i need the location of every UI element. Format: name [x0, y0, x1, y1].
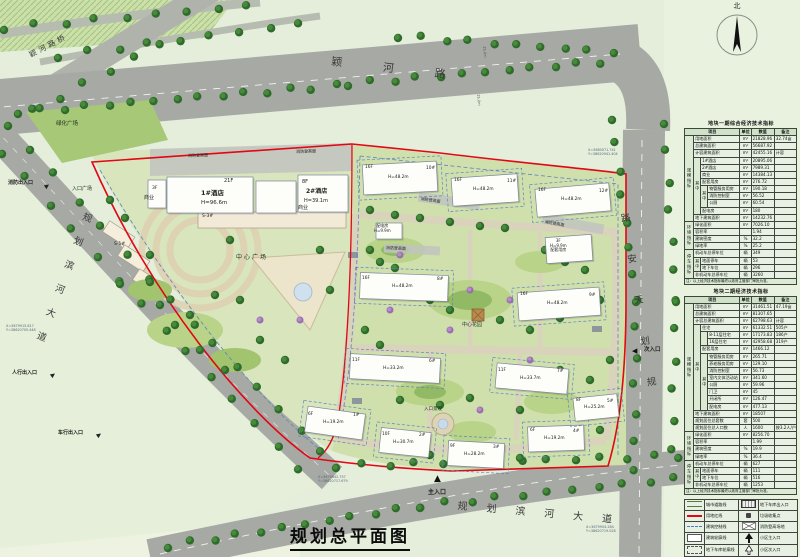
- indicator-table: 项目单位数值备注规模指标用地面积m²31461.5147.19亩总建筑面积m²8…: [684, 296, 797, 495]
- table-group-cell: 其中: [694, 157, 701, 214]
- power-room-label: 配电房H=9.9m: [374, 224, 391, 233]
- table-value-cell: m²: [740, 207, 751, 214]
- table-value-cell: 111: [751, 467, 774, 474]
- table-value-cell: 296: [751, 264, 774, 271]
- center-garden-label: 中心花园: [462, 323, 482, 329]
- table-value-cell: [774, 257, 796, 264]
- table1-title: 地块一期综合经济技术指标: [684, 120, 798, 127]
- building-number-label: 12#: [599, 190, 608, 195]
- table-value-cell: 21828.96: [751, 136, 774, 143]
- table-item-cell: 配电房: [701, 207, 740, 214]
- building-number-label: 1#: [353, 414, 359, 419]
- table-item-cell: 计容总建筑面积: [694, 317, 740, 324]
- table-group-cell: 其中: [694, 325, 701, 411]
- table-value-cell: 20895.06: [751, 157, 774, 164]
- table-row: 非机动车总停车位辆3260: [685, 271, 797, 278]
- table-value-cell: 14232.76: [751, 214, 774, 221]
- building-number-label: 6#: [429, 360, 435, 365]
- table-item-cell: 用地面积: [694, 303, 740, 310]
- table-value-cell: 辆: [740, 250, 751, 257]
- table-value-cell: 186户: [774, 332, 796, 339]
- table-item-cell: 地下建筑面积: [694, 214, 740, 221]
- table-group-cell: 环境指标: [685, 221, 694, 250]
- table-item-cell: 配套用房: [701, 346, 740, 353]
- table-value-cell: 319户: [774, 339, 796, 346]
- legend-row: 地下车库轮廓线小区次入口: [685, 544, 798, 556]
- table-value-cell: 辆: [740, 264, 751, 271]
- table-value-cell: 56.73: [751, 367, 774, 374]
- table-value-cell: 辆: [740, 475, 751, 482]
- table-item-cell: 容积率: [694, 228, 740, 235]
- table-value-cell: 计容: [774, 150, 796, 157]
- table-value-cell: m²: [740, 193, 751, 200]
- table-value-cell: 1253: [751, 482, 774, 489]
- vehicle-entrance-label: 车行出入口: [58, 431, 83, 437]
- north-arrow: 北: [708, 3, 766, 65]
- table-group-cell: 其中: [694, 467, 701, 481]
- table-value-cell: 62798.63: [751, 317, 774, 324]
- table-item-cell: 建筑密度: [694, 236, 740, 243]
- table-value-cell: m²: [740, 396, 751, 403]
- table-row: 环境指标绿化面积m²7026.10: [685, 221, 797, 228]
- table-value-cell: %: [740, 236, 751, 243]
- legend-label: 建筑轮廓线: [705, 532, 739, 544]
- table-group-cell: 停车指标: [685, 460, 694, 489]
- north-label: 北: [708, 3, 766, 10]
- building-height-label: H=48.2m: [473, 188, 494, 193]
- table-value-cell: [774, 475, 796, 482]
- table-header-cell: 项目: [685, 129, 740, 136]
- table-item-cell: 8-11层住宅: [708, 332, 740, 339]
- table-value-cell: %: [740, 446, 751, 453]
- table-value-cell: [774, 207, 796, 214]
- table-value-cell: [774, 417, 796, 424]
- table-item-cell: 配电房: [708, 403, 740, 410]
- table-value-cell: 32.74亩: [774, 136, 796, 143]
- table-value-cell: %: [740, 453, 751, 460]
- table-item-cell: 1#酒店: [701, 157, 740, 164]
- coordinate-label: X=3679915.817Y=38620705.448: [6, 324, 36, 333]
- table-value-cell: m²: [740, 214, 751, 221]
- legend-label: 小区次入口: [759, 544, 798, 556]
- table-row: 地下建筑面积m²18507: [685, 410, 797, 417]
- table-item-cell: 配套用房: [701, 178, 740, 185]
- building-height-label: H=28.2m: [464, 453, 485, 458]
- table-value-cell: 45: [751, 389, 774, 396]
- table-header-cell: 单位: [740, 296, 751, 303]
- table-value-cell: 265.71: [751, 353, 774, 360]
- building-height-label: H=33.7m: [520, 377, 541, 382]
- table-value-cell: [774, 346, 796, 353]
- table-value-cell: 辆: [740, 467, 751, 474]
- table-value-cell: 59.96: [751, 382, 774, 389]
- table-value-cell: m²: [740, 346, 751, 353]
- table-row: 规模指标用地面积m²31461.5147.19亩: [685, 303, 797, 310]
- table-item-cell: 地面停车: [701, 467, 740, 474]
- table-value-cell: [774, 367, 796, 374]
- table-value-cell: 505户: [774, 325, 796, 332]
- table-item-cell: 物管服务用房: [708, 353, 740, 360]
- building-height-label: H=19.2m: [323, 421, 344, 426]
- table-value-cell: 341.60: [751, 375, 774, 382]
- table-value-cell: m²: [740, 332, 751, 339]
- table-row: 其中物管服务用房m²190.18: [685, 186, 797, 193]
- table-value-cell: 计容: [774, 317, 796, 324]
- table-group-cell: 规模指标: [685, 303, 694, 432]
- table-row: 绿地率%36.4: [685, 453, 797, 460]
- table-group-cell: 环境指标: [685, 432, 694, 461]
- table-value-cell: [740, 439, 751, 446]
- table-value-cell: [774, 186, 796, 193]
- legend-label: 垃圾收集点: [759, 510, 798, 521]
- table-item-cell: 开闭所: [708, 396, 740, 403]
- table-value-cell: m²: [740, 325, 751, 332]
- table-value-cell: [774, 446, 796, 453]
- table-value-cell: [774, 164, 796, 171]
- table-item-cell: 地面停车: [701, 257, 740, 264]
- support-room-label: 3FH=9.9m配套用房: [550, 239, 567, 253]
- fire-access-label: 消防登高面: [386, 246, 406, 252]
- table-group-cell: 其中: [694, 257, 701, 271]
- table-row: 其中住宅m²61332.51505户: [685, 325, 797, 332]
- table-value-cell: 190.18: [751, 186, 774, 193]
- fire-access-label: 消防登高面: [296, 149, 316, 154]
- table-value-cell: [774, 264, 796, 271]
- table-row: 规划居住总人口数人1600按3.2人/户: [685, 425, 797, 432]
- table-row: 商业m²14384.13: [685, 171, 797, 178]
- building-floors-label: 10F: [382, 433, 390, 438]
- table-header-cell: 数值: [751, 296, 774, 303]
- coordinate-label: X=3679904.284Y=38620719.028: [586, 525, 616, 534]
- table-value-cell: m²: [740, 410, 751, 417]
- table-value-cell: m²: [740, 178, 751, 185]
- table-item-cell: 非机动车总停车位: [694, 482, 740, 489]
- building-floors-label: 9F: [450, 445, 455, 450]
- building-number-label: 2#: [419, 434, 425, 439]
- legend-label: 消防登高场地: [759, 521, 798, 532]
- table2-title: 地块二期经济技术指标: [684, 288, 798, 295]
- table-value-cell: [774, 467, 796, 474]
- building-number-label: 11#: [507, 180, 516, 185]
- table-value-cell: 辆: [740, 257, 751, 264]
- table-value-cell: m²: [740, 303, 751, 310]
- table-item-cell: 门卫: [708, 389, 740, 396]
- table-item-cell: 地下车位: [701, 475, 740, 482]
- table-value-cell: [774, 432, 796, 439]
- table-item-cell: 总建筑面积: [694, 143, 740, 150]
- building-height-label: H=33.2m: [383, 367, 404, 372]
- legend-row: 城市道路线地下车库出入口: [685, 499, 798, 510]
- table-value-cell: 36.4: [751, 453, 774, 460]
- building-height-label: H=48.2m: [561, 198, 582, 203]
- table-value-cell: m²: [740, 200, 751, 207]
- table-value-cell: m²: [740, 367, 751, 374]
- table-value-cell: [774, 214, 796, 221]
- table-item-cell: 公厕: [708, 200, 740, 207]
- building-s3-label: S-3#: [202, 214, 213, 219]
- table-header-cell: 单位: [740, 129, 751, 136]
- table-value-cell: 53: [751, 257, 774, 264]
- table-item-cell: 规划居住总套数: [694, 417, 740, 424]
- table-item-cell: 容积率: [694, 439, 740, 446]
- table-group-cell: 规模指标: [685, 136, 694, 222]
- table-value-cell: 7989.31: [751, 164, 774, 171]
- legend: 城市道路线地下车库出入口用地红线垃圾收集点建筑控制线消防登高场地建筑轮廓线小区主…: [684, 499, 798, 557]
- table-value-cell: 60.54: [751, 200, 774, 207]
- table-item-cell: 绿地率: [694, 453, 740, 460]
- building-number-label: 4#: [573, 430, 579, 435]
- table-row: 总建筑面积m²81307.65: [685, 310, 797, 317]
- table-row: 其中物管服务用房m²265.71: [685, 353, 797, 360]
- table-item-cell: 非机动车总停车位: [694, 271, 740, 278]
- table-value-cell: [740, 228, 751, 235]
- table-value-cell: [774, 310, 796, 317]
- table-row: 停车指标机动车总停车位辆349: [685, 250, 797, 257]
- legend-label: 地下车库轮廓线: [705, 544, 739, 556]
- table-value-cell: 8256.70: [751, 432, 774, 439]
- table-item-cell: 物管服务用房: [708, 186, 740, 193]
- site-plan-sheet: 颖河路桥 颖河路 规划滨河大道 规划滨河大道 路安天划规 25.0m 25.0m…: [0, 0, 800, 557]
- table-value-cell: m²: [740, 143, 751, 150]
- building-height-label: H=48.2m: [392, 285, 413, 290]
- legend-row: 建筑控制线消防登高场地: [685, 521, 798, 532]
- table-item-cell: 养老服务用房: [708, 360, 740, 367]
- table-value-cell: [774, 403, 796, 410]
- table-item-cell: 消防控制室: [708, 193, 740, 200]
- table-row: 2#酒店m²7989.31: [685, 164, 797, 171]
- table-item-cell: 计容建筑面积: [694, 150, 740, 157]
- hotel2-floors-label: 8F: [302, 180, 308, 186]
- table-row: 其中1#酒店m²20895.06: [685, 157, 797, 164]
- phase2-indicator-table: 项目单位数值备注规模指标用地面积m²31461.5147.19亩总建筑面积m²8…: [684, 296, 798, 495]
- table-value-cell: 32.2: [751, 236, 774, 243]
- table-row: 停车指标机动车总停车位辆627: [685, 460, 797, 467]
- table-value-cell: 17173.83: [751, 332, 774, 339]
- legend-label: 建筑控制线: [705, 521, 739, 532]
- table-item-cell: 住宅: [701, 325, 740, 332]
- table-value-cell: [774, 482, 796, 489]
- table-value-cell: [774, 439, 796, 446]
- outline-rect-icon: [685, 532, 705, 544]
- table-row: 规模指标用地面积m²21828.9632.74亩: [685, 136, 797, 143]
- secondary-entrance-label: 次入口: [644, 347, 661, 353]
- building-number-label: 5#: [607, 400, 613, 405]
- red-line-icon: [685, 510, 705, 521]
- table-value-cell: 辆: [740, 460, 751, 467]
- table-item-cell: 机动车总停车位: [694, 250, 740, 257]
- building-number-label: 10#: [426, 167, 435, 172]
- table-value-cell: m²: [740, 171, 751, 178]
- building-floors-label: 16F: [520, 293, 528, 298]
- hotel2-name-label: 2#酒店: [306, 189, 327, 196]
- table-item-cell: 绿化面积: [694, 221, 740, 228]
- table-item-cell: 规划居住总人口数: [694, 425, 740, 432]
- table-value-cell: [774, 171, 796, 178]
- table-row: 容积率1.94: [685, 228, 797, 235]
- table-item-cell: 地下车位: [701, 264, 740, 271]
- table-value-cell: [774, 193, 796, 200]
- table-value-cell: 辆: [740, 482, 751, 489]
- table-item-cell: 地下建筑面积: [694, 410, 740, 417]
- main-entrance-arrow-icon: ▲: [434, 474, 441, 484]
- building-floors-label: 16F: [538, 189, 546, 194]
- table-row: 绿地率%25.2: [685, 243, 797, 250]
- building-number-label: 9#: [589, 294, 595, 299]
- city-road-icon: [685, 499, 705, 510]
- table-value-cell: 180: [751, 207, 774, 214]
- table-value-cell: 按3.2人/户: [774, 425, 796, 432]
- table-value-cell: 42958.68: [751, 339, 774, 346]
- table-header-cell: 备注: [774, 129, 796, 136]
- legend-label: 用地红线: [705, 510, 739, 521]
- table-item-cell: 2#酒店: [701, 164, 740, 171]
- table-value-cell: m²: [740, 403, 751, 410]
- table-header-cell: 项目: [685, 296, 740, 303]
- table-value-cell: [774, 396, 796, 403]
- hotel1-annex-label: 3F: [152, 186, 157, 191]
- table-row: 总建筑面积m²56687.92: [685, 143, 797, 150]
- main-entrance-label: 主入口: [428, 490, 446, 497]
- table-value-cell: 627: [751, 460, 774, 467]
- building-height-label: H=30.7m: [393, 441, 414, 446]
- building-floors-label: 16F: [365, 166, 373, 171]
- table-value-cell: m²: [740, 310, 751, 317]
- table-value-cell: 349: [751, 250, 774, 257]
- table-row: 配电房m²180: [685, 207, 797, 214]
- table-value-cell: 126.47: [751, 396, 774, 403]
- table-row: 计容总建筑面积m²62798.63计容: [685, 317, 797, 324]
- table-header-cell: 数值: [751, 129, 774, 136]
- table-value-cell: m²: [740, 389, 751, 396]
- table-value-cell: m²: [740, 186, 751, 193]
- table-value-cell: 477.13: [751, 403, 774, 410]
- table-value-cell: 516: [751, 475, 774, 482]
- table-value-cell: 1.94: [751, 228, 774, 235]
- table-value-cell: 56687.92: [751, 143, 774, 150]
- legend-table: 城市道路线地下车库出入口用地红线垃圾收集点建筑控制线消防登高场地建筑轮廓线小区主…: [684, 499, 798, 557]
- table-item-cell: 室内文体活动站: [708, 375, 740, 382]
- control-line-icon: [685, 521, 705, 532]
- table-header-cell: 备注: [774, 296, 796, 303]
- table-group-cell: 其中: [701, 353, 708, 410]
- hotel1-height-label: H=96.6m: [201, 200, 227, 206]
- building-floors-label: 16F: [362, 277, 370, 282]
- table-value-cell: m²: [740, 150, 751, 157]
- table-value-cell: 31461.51: [751, 303, 774, 310]
- table-value-cell: %: [740, 243, 751, 250]
- table-item-cell: 总建筑面积: [694, 310, 740, 317]
- table-row: 建筑密度%19.9: [685, 446, 797, 453]
- building-floors-label: 6F: [530, 429, 535, 434]
- commercial-label: 商业: [144, 196, 154, 202]
- legend-label: 小区主入口: [759, 532, 798, 544]
- table-row: 配套用房m²1466.12: [685, 346, 797, 353]
- main-arrow-icon: [739, 532, 759, 544]
- table-value-cell: 81307.65: [751, 310, 774, 317]
- indicator-table: 项目单位数值备注规模指标用地面积m²21828.9632.74亩总建筑面积m²5…: [684, 128, 797, 285]
- building-floors-label: 16F: [454, 179, 462, 184]
- site-plan-map: [0, 0, 800, 557]
- table-row: 环境指标绿化面积m²8256.70: [685, 432, 797, 439]
- table-row: 建筑密度%32.2: [685, 236, 797, 243]
- table-row: 8-11层住宅m²17173.83186户: [685, 332, 797, 339]
- table-value-cell: m²: [740, 221, 751, 228]
- indicator-panel: 地块一期综合经济技术指标 项目单位数值备注规模指标用地面积m²21828.963…: [684, 119, 798, 557]
- table-value-cell: [774, 360, 796, 367]
- table-value-cell: [774, 228, 796, 235]
- pedestrian-entrance-label: 人行出入口: [12, 371, 37, 377]
- table-footnote: 注：以上经济技术指标最终以政府主管部门审批为准。: [685, 278, 797, 284]
- table-item-cell: 绿地率: [694, 243, 740, 250]
- table-value-cell: 1466.12: [751, 346, 774, 353]
- table-value-cell: 18507: [751, 410, 774, 417]
- table-row: 容积率1.99: [685, 439, 797, 446]
- table-value-cell: m²: [740, 339, 751, 346]
- table-value-cell: m²: [740, 317, 751, 324]
- table-item-cell: 16层住宅: [708, 339, 740, 346]
- table-item-cell: 建筑密度: [694, 446, 740, 453]
- building-height-label: H=25.2m: [584, 406, 605, 411]
- table-item-cell: 绿化面积: [694, 432, 740, 439]
- garage-rect-icon: [685, 544, 705, 556]
- table-value-cell: m²: [740, 382, 751, 389]
- table-footnote: 注：以上经济技术指标最终以政府主管部门审批为准。: [685, 489, 797, 495]
- table-value-cell: m²: [740, 375, 751, 382]
- table-item-cell: 公厕: [708, 382, 740, 389]
- table-value-cell: 276.72: [751, 178, 774, 185]
- table-value-cell: 129.10: [751, 360, 774, 367]
- green-plaza-label: 绿化广场: [56, 121, 78, 127]
- building-number-label: 8#: [437, 278, 443, 283]
- table-row: 规划居住总套数套500: [685, 417, 797, 424]
- table-value-cell: 3260: [751, 271, 774, 278]
- table-value-cell: 1.99: [751, 439, 774, 446]
- building-height-label: H=19.2m: [544, 437, 565, 442]
- coordinate-label: X=3680071.741Y=38620941.404: [588, 148, 618, 157]
- table-value-cell: [774, 243, 796, 250]
- table-value-cell: 61332.51: [751, 325, 774, 332]
- table-item-cell: 商业: [701, 171, 740, 178]
- entrance-plaza-label: 入口广场: [72, 187, 92, 193]
- table-value-cell: [774, 389, 796, 396]
- table-row: 地下建筑面积m²14232.76: [685, 214, 797, 221]
- building-number-label: 3#: [493, 446, 499, 451]
- table-value-cell: m²: [740, 360, 751, 367]
- building-number-label: 7#: [557, 370, 563, 375]
- table-row: 非机动车总停车位辆1253: [685, 482, 797, 489]
- table-value-cell: 25.2: [751, 243, 774, 250]
- garage-entry-icon: [739, 499, 759, 510]
- table-value-cell: [774, 353, 796, 360]
- commercial-label: 商业: [298, 206, 308, 212]
- table-row: 其中地面停车辆111: [685, 467, 797, 474]
- table-value-cell: [774, 178, 796, 185]
- table-group-cell: 其中: [701, 186, 708, 207]
- table-value-cell: [774, 221, 796, 228]
- table-value-cell: 人: [740, 425, 751, 432]
- hotel1-name-label: 1#酒店: [201, 190, 224, 197]
- table-value-cell: [774, 236, 796, 243]
- table-row: 地下车位辆516: [685, 475, 797, 482]
- legend-label: 城市道路线: [705, 499, 739, 510]
- table-value-cell: m²: [740, 353, 751, 360]
- table-value-cell: m²: [740, 136, 751, 143]
- hotel2-height-label: H=39.1m: [304, 199, 328, 205]
- table-row: 地下车位辆296: [685, 264, 797, 271]
- table-value-cell: [774, 271, 796, 278]
- sec-arrow-icon: [739, 544, 759, 556]
- fire-access-label: 消防登高面: [188, 153, 208, 158]
